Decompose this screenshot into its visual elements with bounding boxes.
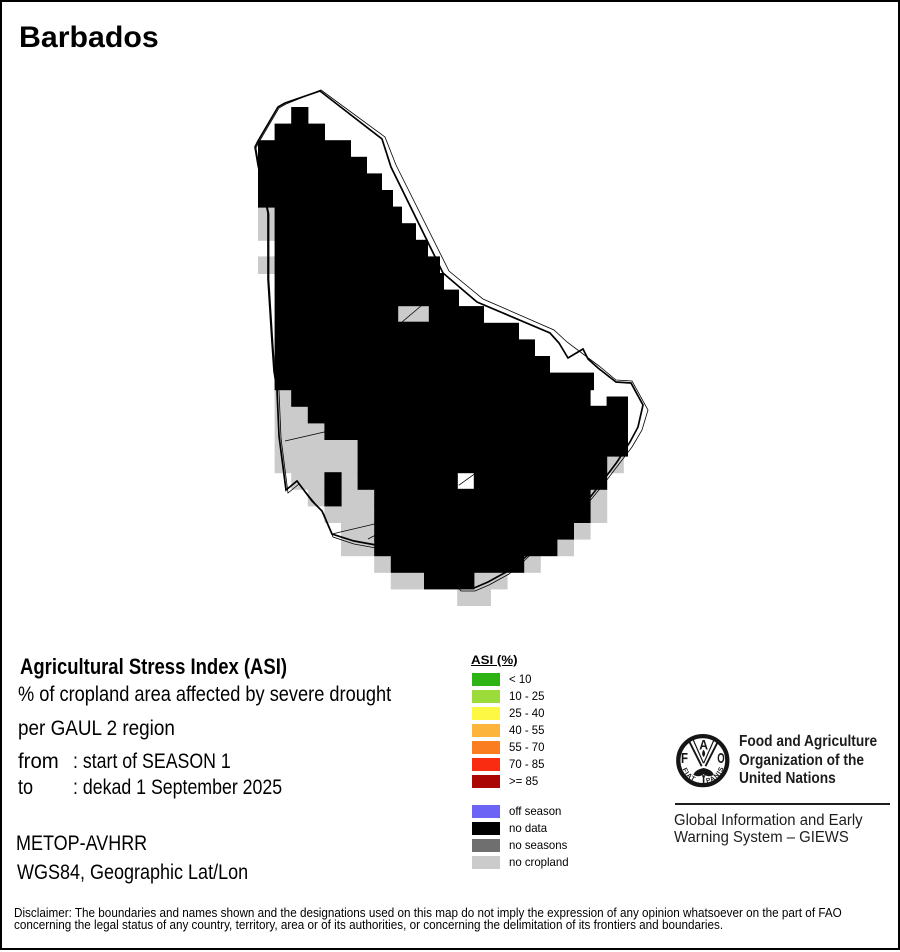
svg-text:F: F — [681, 750, 688, 767]
svg-text:O: O — [717, 750, 725, 767]
